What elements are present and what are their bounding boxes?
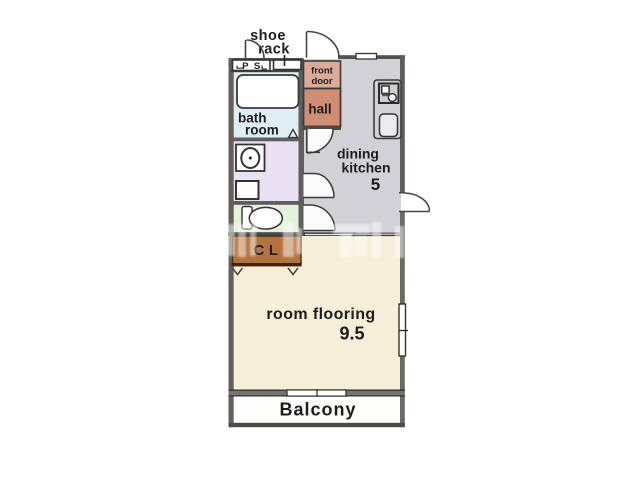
- svg-text:hall: hall: [308, 102, 331, 117]
- svg-text:room: room: [245, 123, 279, 138]
- svg-text:P S: P S: [242, 61, 262, 72]
- svg-text:5: 5: [371, 175, 380, 194]
- svg-text:rack: rack: [258, 42, 290, 58]
- svg-text:room flooring: room flooring: [266, 306, 375, 323]
- svg-text:CL: CL: [254, 242, 283, 259]
- svg-text:door: door: [311, 76, 332, 87]
- svg-text:Balcony: Balcony: [279, 400, 356, 420]
- svg-text:9.5: 9.5: [339, 324, 364, 344]
- svg-text:front: front: [311, 66, 333, 77]
- svg-text:kitchen: kitchen: [341, 160, 390, 176]
